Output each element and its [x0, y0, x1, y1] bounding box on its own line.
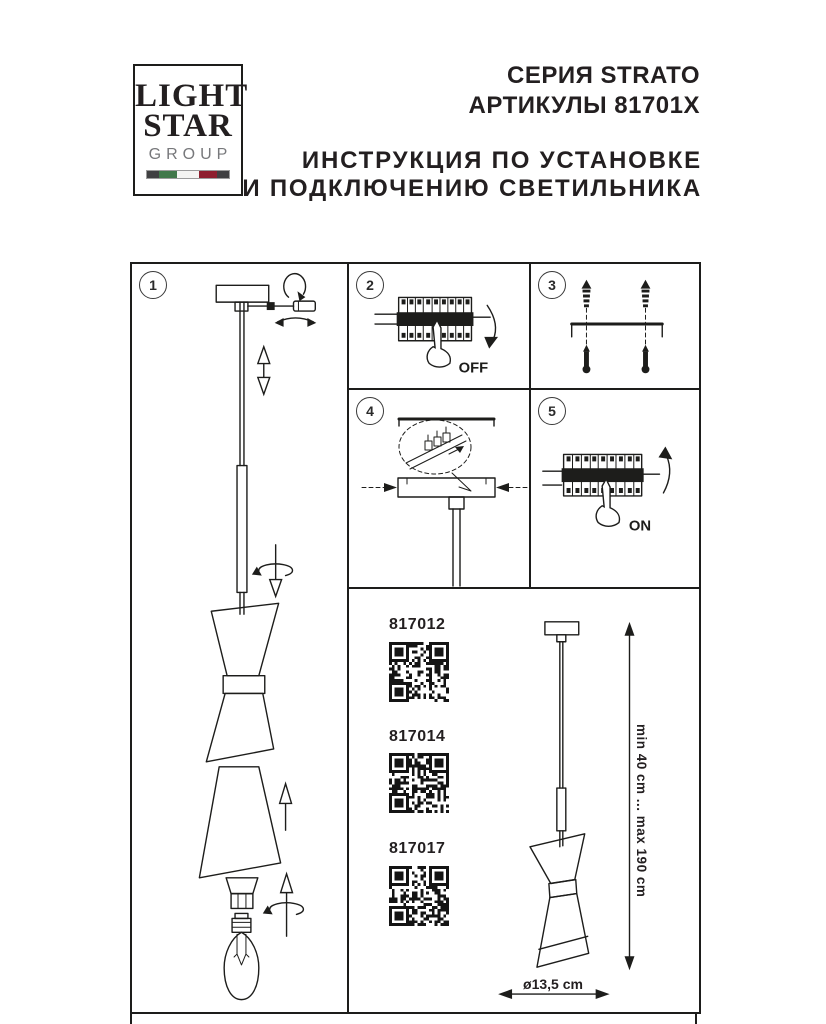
- qr-code: [389, 866, 449, 926]
- article-number: 817012: [389, 616, 445, 634]
- rotate-down-arrow-icon: [252, 545, 293, 597]
- articles-title: АРТИКУЛЫ 81701X: [469, 91, 700, 121]
- step-1-illustration: [132, 264, 347, 1012]
- rotate-up-arrow-icon: [263, 874, 304, 936]
- next-section-edge: [130, 1012, 697, 1024]
- article-number: 817014: [389, 728, 445, 746]
- switch-on-arrow-icon: [658, 447, 672, 493]
- up-down-arrow-icon: [258, 347, 270, 395]
- up-arrow-icon: [280, 784, 292, 831]
- height-dimension-line: [625, 622, 635, 970]
- lightstar-logo: LIGHT STAR GROUP: [133, 64, 243, 196]
- logo-group: GROUP: [135, 146, 241, 164]
- canopy-drawing: [216, 285, 269, 311]
- rotate-arrow-icon: [275, 274, 317, 327]
- breaker-panel-drawing: [543, 454, 660, 496]
- pointing-hand-icon: [427, 320, 450, 367]
- suspension-rod-drawing: [237, 302, 247, 614]
- screw-icon: [642, 326, 650, 373]
- cone-shade-drawing: [199, 767, 280, 878]
- logo-star: STAR: [135, 111, 241, 141]
- bulb-icon: [224, 913, 259, 999]
- article-number: 817017: [389, 840, 445, 858]
- wall-plug-icon: [582, 280, 592, 323]
- breaker-panel-drawing: [375, 297, 490, 340]
- step-2-illustration: OFF: [349, 264, 529, 388]
- products-panel: 817012 817014 817017 min 40 cm ... max 1…: [349, 587, 699, 1012]
- step-4-panel: 4: [349, 390, 529, 587]
- canopy-drawing: [398, 478, 495, 497]
- on-label: ON: [629, 519, 651, 535]
- title-line-1: ИНСТРУКЦИЯ ПО УСТАНОВКЕ: [242, 147, 702, 175]
- height-dimension-label: min 40 cm ... max 190 cm: [634, 724, 649, 897]
- step-3-illustration: [531, 264, 699, 388]
- off-label: OFF: [459, 360, 488, 376]
- shade-drawing: [206, 603, 278, 762]
- step-2-panel: 2 OFF: [349, 264, 529, 390]
- step-1-panel: 1: [132, 264, 349, 1012]
- italian-flag-stripe-icon: [146, 170, 230, 179]
- step-5-panel: 5 ON: [529, 390, 699, 587]
- step-4-illustration: [349, 390, 529, 587]
- socket-drawing: [226, 878, 258, 909]
- instruction-grid: 1: [130, 262, 701, 1014]
- wiring-detail-callout: [399, 420, 471, 491]
- mounting-bracket-drawing: [572, 324, 663, 337]
- wall-plug-icon: [641, 280, 651, 323]
- series-title: СЕРИЯ STRATO: [469, 61, 700, 91]
- title-line-2: И ПОДКЛЮЧЕНИЮ СВЕТИЛЬНИКА: [242, 175, 702, 203]
- screw-icon: [583, 326, 591, 373]
- diameter-dimension-label: ø13,5 cm: [497, 976, 609, 992]
- screwdriver-icon: [267, 301, 316, 311]
- page-title: ИНСТРУКЦИЯ ПО УСТАНОВКЕ И ПОДКЛЮЧЕНИЮ СВ…: [242, 147, 702, 203]
- step-5-illustration: ON: [531, 390, 699, 587]
- logo-light: LIGHT: [135, 81, 241, 111]
- header-series-block: СЕРИЯ STRATO АРТИКУЛЫ 81701X: [469, 61, 700, 121]
- instruction-sheet: LIGHT STAR GROUP СЕРИЯ STRATO АРТИКУЛЫ 8…: [0, 0, 826, 1024]
- pendant-lamp-drawing: [530, 622, 589, 967]
- qr-code: [389, 642, 449, 702]
- suspension-rod-drawing: [449, 497, 464, 586]
- step-3-panel: 3: [529, 264, 699, 390]
- switch-off-arrow-icon: [484, 305, 498, 348]
- side-screw-arrow-icon: [362, 483, 527, 492]
- qr-code: [389, 753, 449, 813]
